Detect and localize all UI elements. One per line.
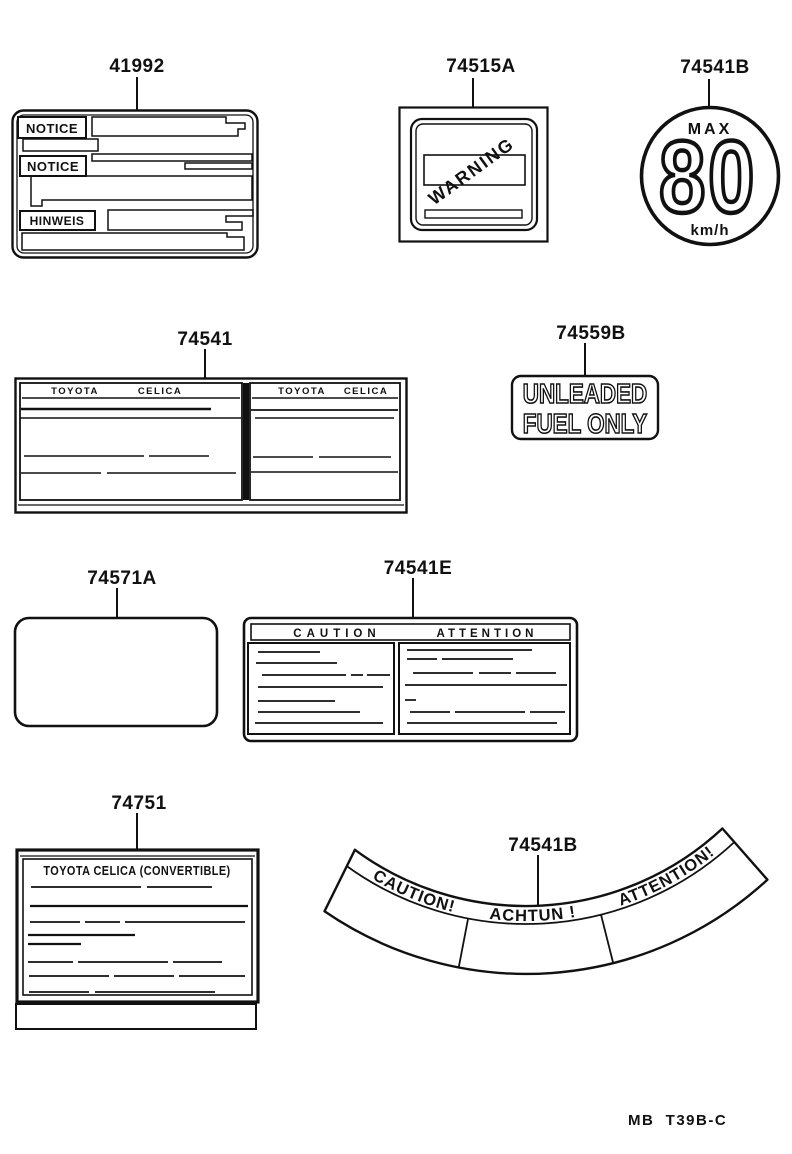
label-art-convertible: TOYOTA CELICA (CONVERTIBLE) [15,848,262,1031]
leader-line [584,343,586,377]
speed-value-text: 80 [659,120,757,234]
leader-line [136,77,138,110]
figure-74541: TOYOTA CELICA TOYOTA CELICA [14,377,408,514]
section-notice-2: NOTICE [20,154,252,206]
brand-text: TOYOTA [278,386,326,397]
leader-line [708,79,710,106]
left-panel: TOYOTA CELICA [20,386,241,473]
greeked-text-lines [405,650,567,723]
figure-74559b: UNLEADED FUEL ONLY [510,374,660,442]
figure-74541b-band: CAUTION! ACHTUN ! ATTENTION! [318,818,788,998]
greeked-text-lines [251,398,398,472]
figure-74541b-circle: MAX 80 km/h [637,104,785,248]
label-art-blank [13,616,219,728]
part-number-41992: 41992 [109,56,164,78]
right-panel: TOYOTA CELICA [251,386,398,472]
part-number-74571a: 74571A [87,568,157,590]
fuel-text-line2: FUEL ONLY [523,409,647,440]
part-number-74541e: 74541E [384,558,453,580]
model-text: CELICA [344,386,388,397]
label-art-74515a: WARNING [398,106,550,244]
leader-line [472,78,474,107]
part-number-74541: 74541 [177,329,232,351]
label-art-caution: CAUTION ATTENTION [242,616,579,743]
greeked-text-lines [20,398,241,473]
section-notice-1: NOTICE [18,117,245,151]
warning-text: WARNING [425,133,518,209]
hinweis-text: HINWEIS [30,214,85,228]
figure-74571a [13,616,219,728]
greeked-text-block [425,210,522,218]
section-hinweis: HINWEIS [20,210,253,250]
leader-line [116,588,118,618]
attention-heading: ATTENTION [437,628,538,640]
leader-line [412,578,414,617]
brand-text: TOYOTA [51,386,99,397]
label-art-74541: TOYOTA CELICA TOYOTA CELICA [14,377,408,514]
figure-74751: TOYOTA CELICA (CONVERTIBLE) [15,848,262,1031]
diagram-plate-code: MB T39B-C [628,1112,727,1129]
figure-74541e: CAUTION ATTENTION [242,616,579,743]
label-art-caution-band: CAUTION! ACHTUN ! ATTENTION! [318,818,788,998]
fuel-text-line1: UNLEADED [523,379,647,410]
label-art-fuel: UNLEADED FUEL ONLY [510,374,660,442]
model-text: CELICA [138,386,182,397]
greeked-text-lines [28,887,248,992]
parts-diagram-page: 41992 74515A 74541B 74541 74559B 74571A … [0,0,792,1154]
leader-line [136,813,138,850]
part-number-74541b-circle: 74541B [680,57,750,79]
convertible-title: TOYOTA CELICA (CONVERTIBLE) [43,863,230,878]
caution-heading: CAUTION [293,628,380,640]
greeked-text-lines [255,652,390,723]
notice-text-2: NOTICE [27,159,79,174]
notice-text-1: NOTICE [26,121,78,136]
part-number-74515a: 74515A [446,56,516,78]
label-art-41992: NOTICE NOTICE HINWEIS [11,109,259,259]
label-art-speed-limit: MAX 80 km/h [637,104,785,248]
part-number-74559b: 74559B [556,323,626,345]
speed-unit-text: km/h [690,222,729,239]
leader-line [204,349,206,378]
figure-41992: NOTICE NOTICE HINWEIS [11,109,259,259]
figure-74515a: WARNING [398,106,550,244]
part-number-74751: 74751 [111,793,166,815]
